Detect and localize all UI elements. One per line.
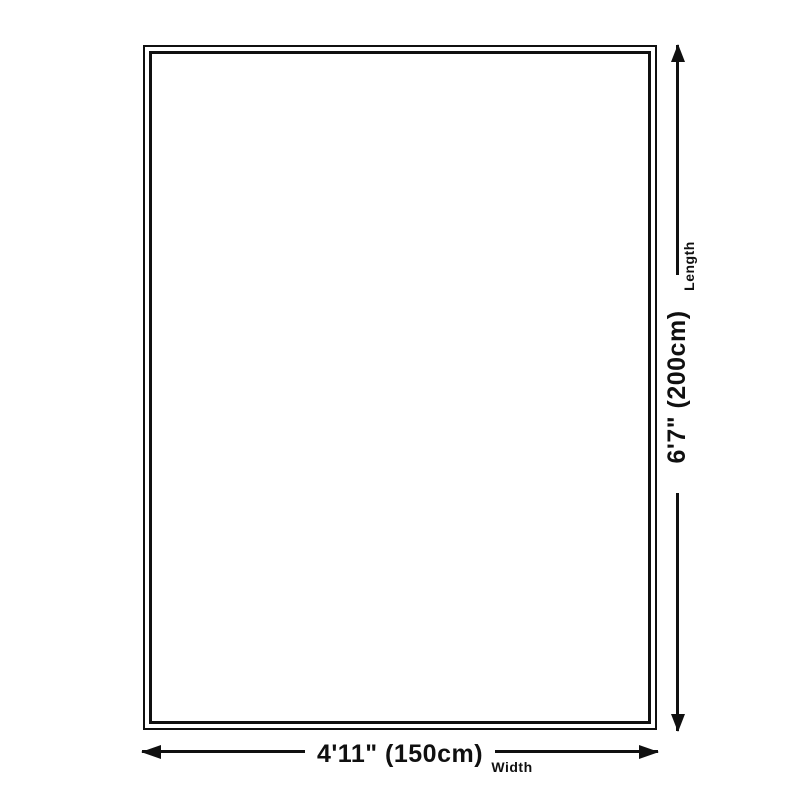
- product-outline-outer: [143, 45, 657, 730]
- length-dimension-value: 6'7" (200cm): [662, 302, 692, 472]
- length-arrow-top-segment: [676, 45, 679, 275]
- length-arrow-bottom-segment: [676, 493, 679, 731]
- width-arrow-right-segment: [495, 750, 658, 753]
- width-axis-label: Width: [484, 758, 540, 776]
- width-arrow-left-segment: [142, 750, 305, 753]
- length-axis-label: Length: [680, 231, 698, 301]
- dimension-diagram: 6'7" (200cm) Length 4'11" (150cm) Width: [0, 0, 800, 800]
- product-outline-inner: [149, 51, 651, 724]
- width-dimension-value: 4'11" (150cm): [300, 739, 500, 769]
